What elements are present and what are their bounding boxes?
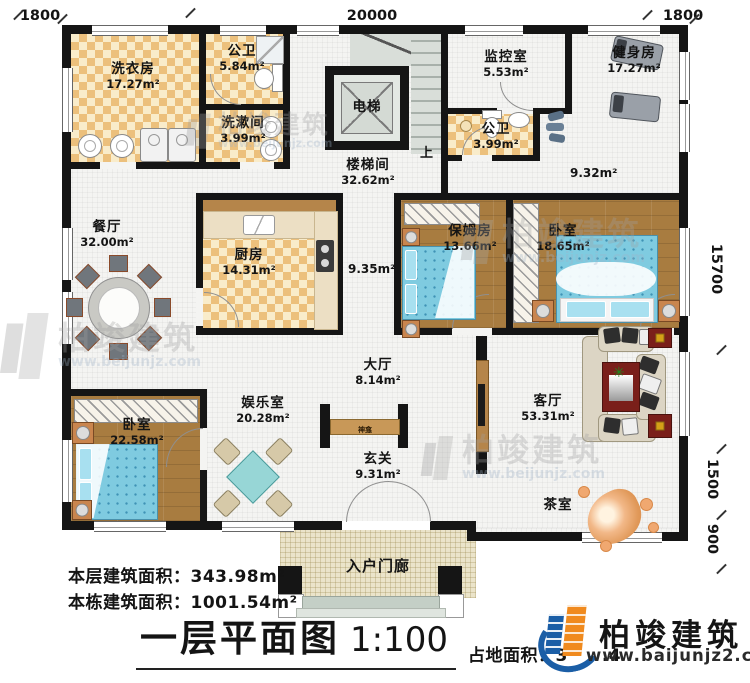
window	[94, 521, 166, 532]
shower-tray	[256, 36, 284, 64]
window	[62, 228, 73, 280]
wall	[565, 25, 572, 114]
plan-title: 一层平面图1:100	[136, 608, 456, 670]
nightstand	[72, 500, 92, 520]
dim-top-center: 20000	[312, 8, 432, 24]
dining-chair	[109, 255, 128, 272]
door-opening	[100, 162, 136, 169]
kitchen-sink	[243, 215, 275, 235]
door-opening	[196, 288, 203, 326]
cushion	[603, 417, 621, 434]
window	[679, 228, 690, 316]
nightstand	[658, 300, 680, 322]
pillow	[566, 301, 606, 318]
window	[679, 352, 690, 436]
window	[220, 25, 266, 36]
wall	[199, 104, 290, 110]
window	[62, 440, 73, 502]
wall	[476, 450, 487, 474]
pillow	[79, 448, 92, 480]
dim-tick	[716, 345, 727, 356]
tea-cushion	[600, 540, 612, 552]
porch-column	[438, 566, 462, 594]
nightstand	[402, 228, 420, 246]
shrine-label: 神龛	[358, 426, 372, 434]
window	[679, 52, 690, 100]
window	[92, 25, 168, 36]
dim-tick	[185, 8, 196, 19]
dining-chair	[154, 298, 171, 317]
washing-machine	[140, 128, 168, 162]
washroom-sink	[260, 116, 282, 138]
washing-machine	[168, 128, 196, 162]
bed-sheet	[556, 262, 656, 296]
wardrobe	[404, 203, 480, 225]
dim-right-upper: 15700	[708, 239, 724, 299]
tv	[478, 384, 485, 426]
wall	[320, 404, 330, 448]
shrine-shelf: 神龛	[330, 419, 400, 435]
pillow	[405, 284, 417, 314]
tea-cushion	[648, 522, 659, 533]
door-opening	[452, 328, 492, 335]
company-logo-url: www.baijunjz2.com	[586, 646, 750, 665]
window	[679, 104, 690, 152]
toilet-bowl	[254, 68, 274, 89]
window	[62, 68, 73, 132]
cushion	[603, 327, 621, 344]
floor-area-line: 本层建筑面积：343.98m²	[68, 562, 285, 587]
kitchen-cabinet-strip	[203, 200, 336, 211]
elevator-shaft	[325, 66, 409, 150]
wall	[476, 336, 487, 360]
dim-right-mid: 1500	[704, 449, 720, 509]
laundry-sink	[110, 134, 134, 158]
door-opening	[462, 155, 492, 161]
coffee-table: ✳	[602, 362, 640, 412]
nightstand	[532, 300, 554, 322]
window	[588, 25, 660, 36]
plant-icon: ✳	[613, 365, 625, 381]
wall	[283, 25, 290, 169]
side-table	[648, 328, 672, 348]
dumbbell	[546, 123, 564, 131]
stove-burner	[321, 259, 329, 267]
treadmill	[609, 91, 661, 122]
stove-burner	[321, 245, 329, 253]
cushion	[621, 417, 639, 436]
laundry-sink	[78, 134, 102, 158]
dumbbell-rack	[546, 112, 568, 142]
bath-sink	[508, 112, 530, 128]
wall	[62, 389, 207, 396]
side-table	[648, 414, 672, 438]
wall	[467, 521, 476, 541]
elevator-car	[341, 82, 393, 134]
wall	[196, 193, 343, 200]
wall	[199, 25, 206, 169]
pillow	[610, 301, 650, 318]
nightstand	[402, 320, 420, 338]
entry-door-opening	[342, 521, 430, 530]
washroom-sink	[260, 139, 282, 161]
cushion	[621, 327, 638, 344]
dumbbell	[547, 110, 564, 122]
kitchen-stove	[316, 240, 334, 272]
door-opening	[240, 162, 274, 169]
wall	[394, 193, 688, 200]
tea-cushion	[578, 486, 590, 498]
wall	[506, 193, 513, 335]
stair-flight	[411, 28, 443, 154]
window	[222, 521, 294, 532]
dim-top-right: 1800	[648, 8, 718, 24]
watermark-building-icon	[2, 313, 50, 379]
wall	[533, 108, 540, 161]
floor-plan: 1800 20000 1800 15700 1500 900	[0, 0, 750, 683]
wardrobe	[74, 399, 198, 423]
pillow	[405, 250, 417, 280]
window	[297, 25, 339, 36]
dining-table-top	[98, 287, 140, 329]
dining-table	[88, 277, 150, 339]
wall	[394, 193, 401, 335]
nightstand	[72, 422, 94, 444]
window	[465, 25, 523, 36]
dining-chair	[109, 343, 128, 360]
dumbbell	[548, 133, 565, 144]
tea-cushion	[640, 498, 653, 511]
dining-chair	[66, 298, 83, 317]
floor-drain	[460, 120, 472, 132]
